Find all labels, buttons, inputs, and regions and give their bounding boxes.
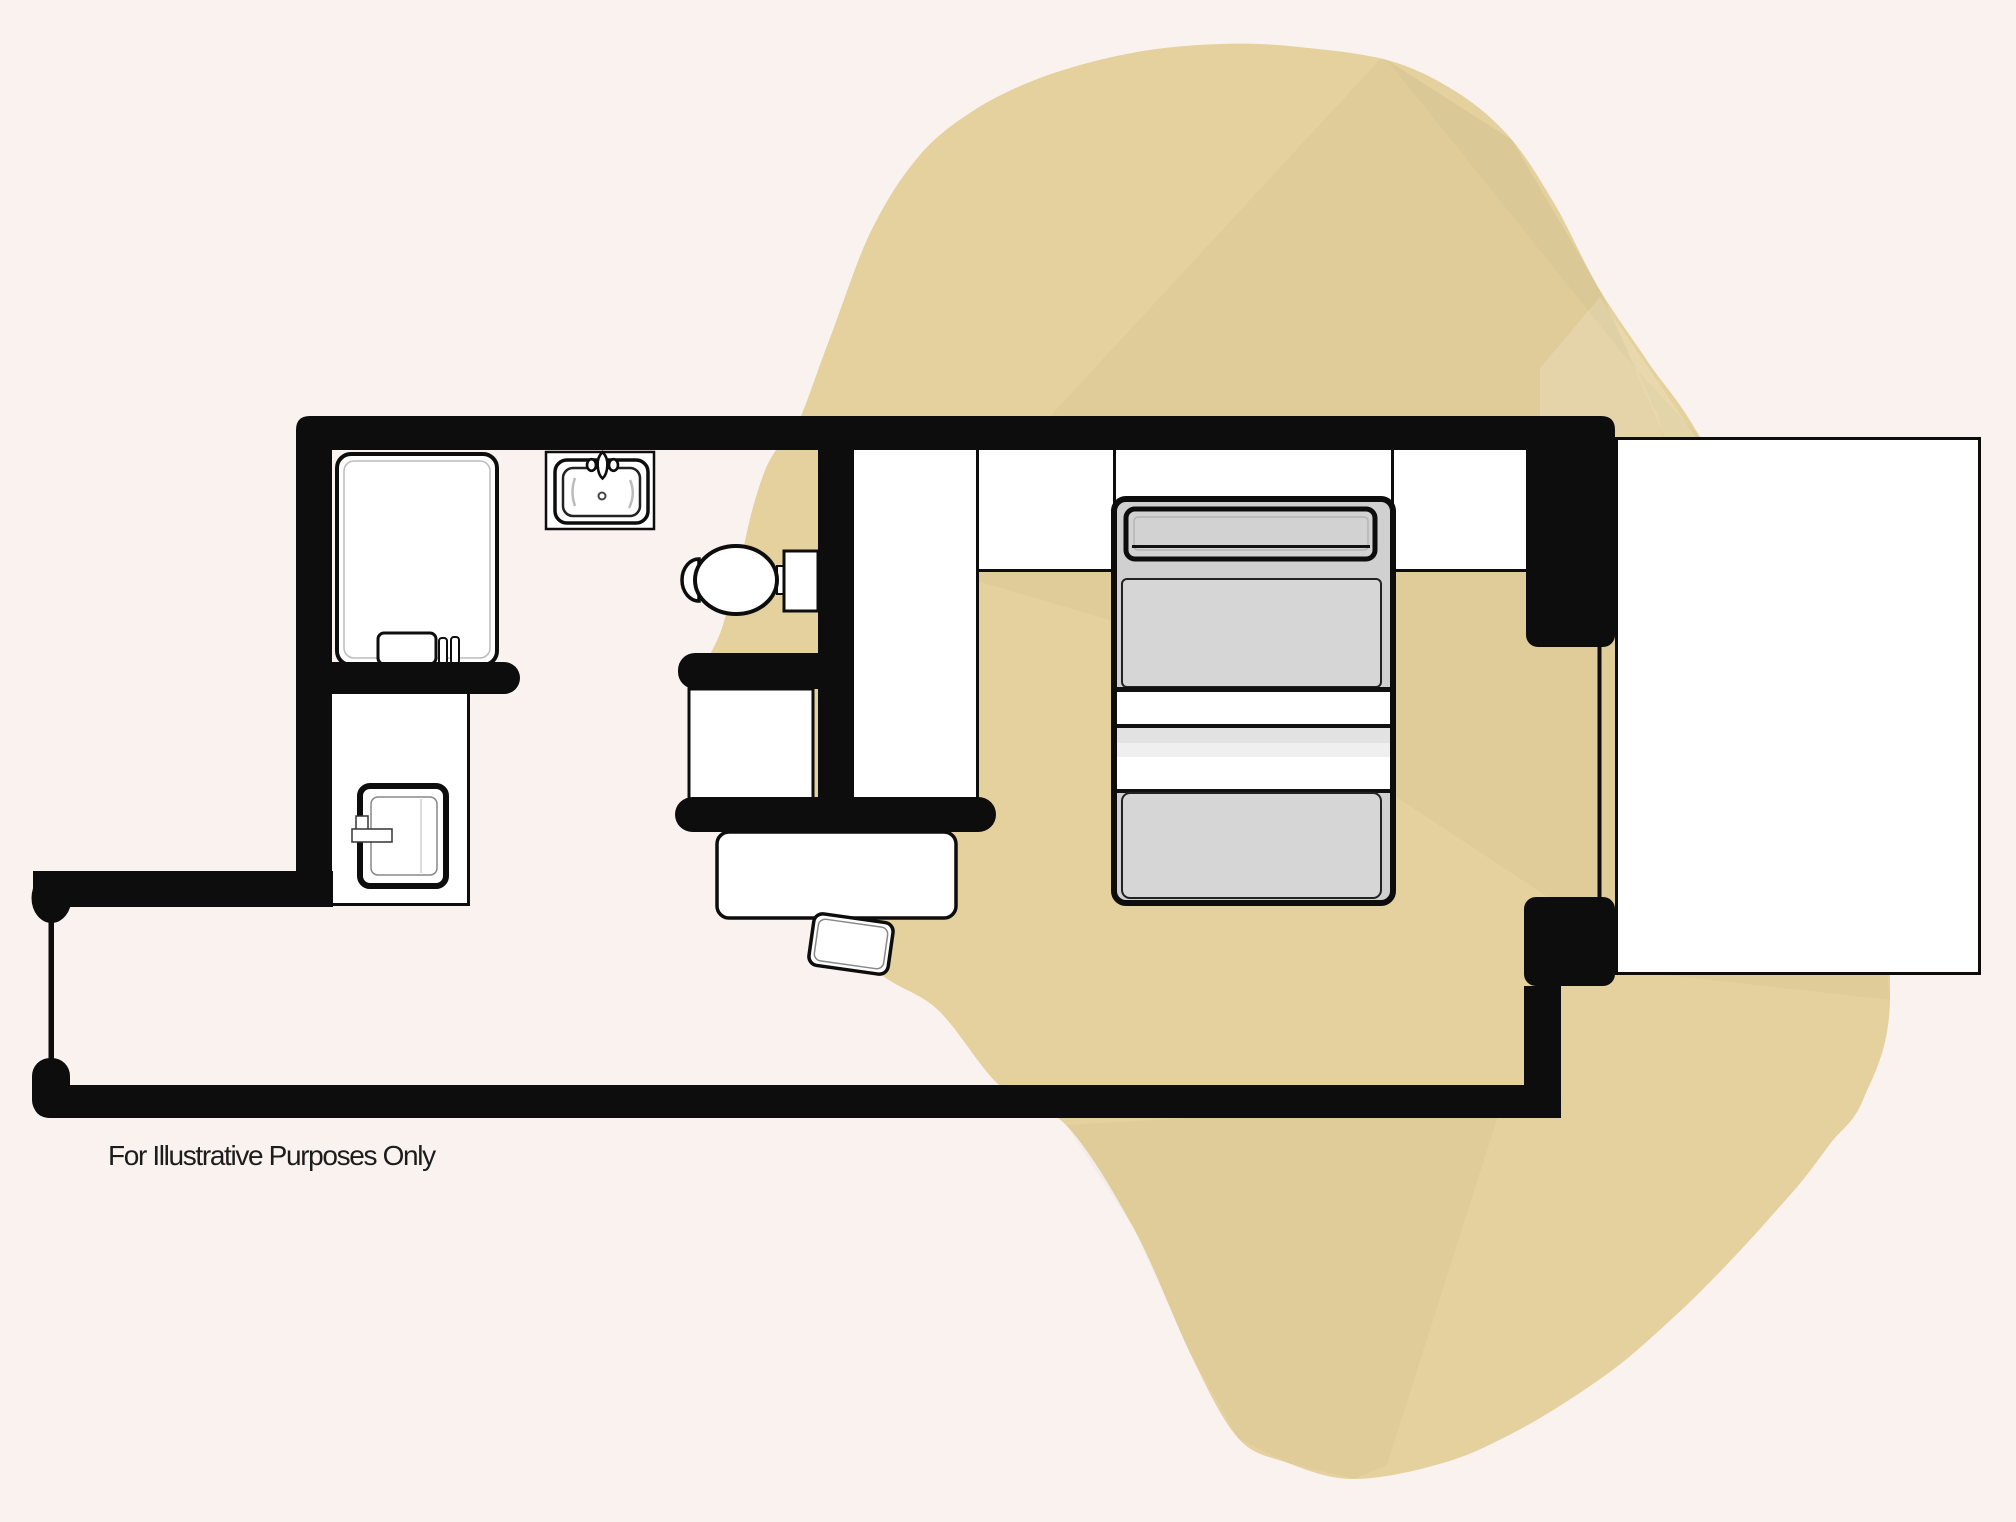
svg-text:For Illustrative Purposes Only: For Illustrative Purposes Only <box>108 1140 436 1171</box>
